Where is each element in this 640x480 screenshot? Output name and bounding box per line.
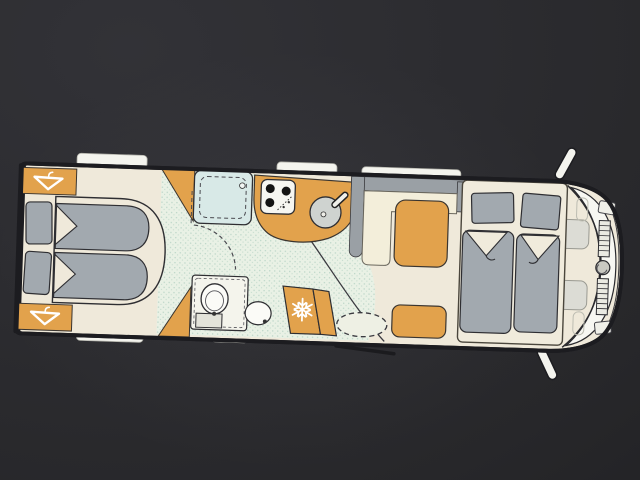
shower-drain	[239, 183, 245, 189]
toilet-tank	[196, 313, 222, 328]
side-mirror-top	[554, 147, 578, 181]
pillow-dropdown-left	[471, 193, 514, 224]
pillow-bed-bottom	[23, 251, 52, 295]
brand-emblem	[596, 260, 610, 274]
sink-drain	[321, 212, 326, 217]
pillow-bed-top	[26, 202, 52, 244]
dinette-sofa-seat	[394, 200, 449, 268]
washbasin	[245, 301, 272, 325]
toilet-bowl	[201, 283, 229, 314]
photo-background	[0, 0, 640, 480]
motorhome-floorplan	[5, 141, 628, 396]
rear-wardrobe-bottom	[17, 303, 72, 331]
floorplan-drawing	[5, 141, 628, 396]
pillow-dropdown-right	[520, 193, 561, 230]
rear-wardrobe-top	[21, 167, 77, 195]
stove	[260, 179, 295, 214]
side-bench	[391, 305, 446, 339]
